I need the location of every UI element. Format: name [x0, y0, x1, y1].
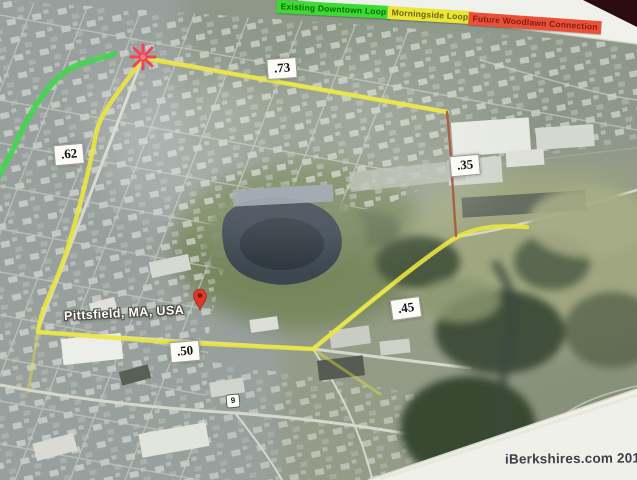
distance-label-right: .35: [449, 154, 481, 178]
route-9-shield: 9: [225, 393, 240, 408]
map-photo: Existing Downtown Loop Morningside Loop …: [0, 0, 637, 480]
distance-label-left: .62: [53, 143, 85, 167]
satellite-map: [0, 0, 637, 480]
junction-star-icon: [131, 45, 155, 69]
watermark: iBerkshires.com 2014: [505, 450, 637, 466]
distance-label-bottom: .50: [169, 340, 201, 364]
distance-label-top: .73: [266, 57, 298, 80]
distance-label-southeast: .45: [390, 296, 423, 321]
